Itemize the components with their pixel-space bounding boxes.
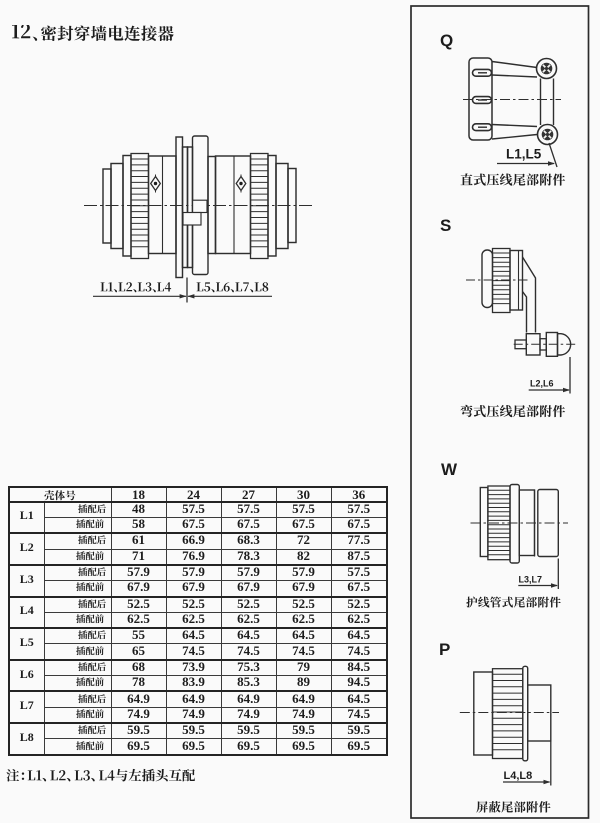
svg-text:L3,L7: L3,L7 <box>519 575 543 585</box>
svg-text:W: W <box>441 460 458 479</box>
svg-text:P: P <box>439 640 450 659</box>
svg-text:L4,L8: L4,L8 <box>504 770 533 782</box>
svg-text:L2,L6: L2,L6 <box>530 379 554 389</box>
svg-text:S: S <box>440 216 451 235</box>
svg-text:L1,L5: L1,L5 <box>506 147 542 162</box>
svg-text:Q: Q <box>440 31 453 50</box>
